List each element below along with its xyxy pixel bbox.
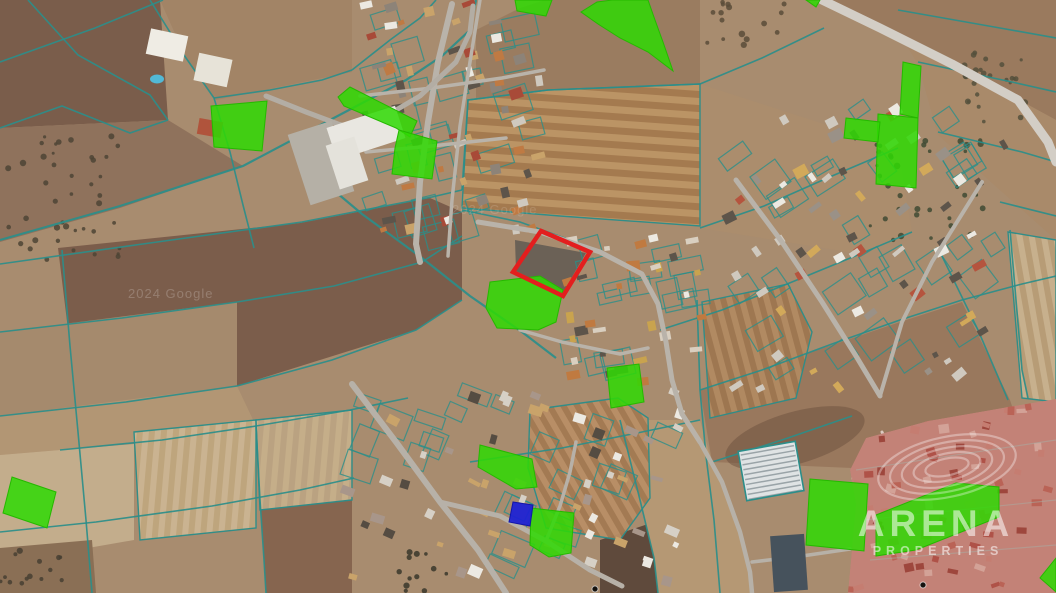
tree [27, 574, 33, 580]
tree [99, 175, 103, 179]
tree [20, 581, 25, 586]
tree [962, 193, 967, 198]
tree [971, 52, 977, 58]
tree [52, 163, 57, 168]
listing-map-image[interactable]: 2024 Google 2024 Google ARENA PROPERTIES [0, 0, 1056, 593]
tree [1018, 115, 1024, 121]
tree [1020, 58, 1023, 61]
tree [721, 2, 725, 6]
tree [1014, 76, 1019, 81]
tree [56, 555, 61, 560]
tree [914, 206, 920, 212]
tree [20, 160, 26, 166]
tree [13, 552, 17, 556]
blue-parcel [509, 502, 533, 526]
green-parcel [486, 276, 563, 330]
tree [54, 142, 57, 145]
tree [63, 223, 69, 229]
tree [40, 141, 44, 145]
tree [91, 229, 96, 234]
tree [43, 135, 46, 138]
tree [89, 182, 93, 186]
tree [32, 237, 38, 243]
tree [999, 62, 1004, 67]
tree [28, 246, 33, 251]
tree [403, 583, 409, 589]
tree [41, 154, 47, 160]
house [585, 319, 596, 327]
tree [8, 580, 13, 585]
tree [407, 549, 413, 555]
tree [445, 572, 449, 576]
brand-name: ARENA [858, 503, 1015, 544]
tree [898, 193, 903, 198]
tree [108, 133, 114, 139]
tree [721, 37, 725, 41]
striped-field [134, 420, 256, 540]
tree [43, 180, 48, 185]
tree [982, 120, 986, 124]
map-canvas: 2024 Google 2024 Google ARENA PROPERTIES [0, 0, 1056, 593]
green-parcel [211, 101, 267, 151]
green-parcel [900, 62, 921, 118]
tree [6, 225, 11, 230]
tree [705, 41, 709, 45]
house [604, 246, 610, 251]
terrain-patch [0, 0, 168, 128]
tree [17, 548, 23, 554]
tree [3, 575, 7, 579]
tree [407, 576, 411, 580]
house [490, 163, 502, 175]
tree [983, 57, 988, 62]
tree [52, 152, 55, 155]
tree [883, 216, 888, 221]
tree [761, 21, 767, 27]
tree [18, 241, 23, 246]
tree [116, 144, 121, 149]
tree [112, 221, 116, 225]
tree [947, 216, 951, 220]
tree [70, 174, 74, 178]
marker-dot [920, 582, 926, 588]
tree [56, 239, 60, 243]
tree [779, 10, 784, 15]
tree [775, 30, 780, 35]
tree [74, 229, 77, 232]
tree [397, 569, 402, 574]
tree [739, 31, 746, 38]
tree [407, 555, 412, 560]
tree [725, 2, 730, 7]
tree [37, 559, 42, 564]
tree [744, 36, 750, 42]
tree [980, 205, 986, 211]
tree [414, 574, 419, 579]
tree [53, 199, 58, 204]
tree [404, 589, 408, 593]
tree [964, 150, 968, 154]
imagery-watermark: 2024 Google [128, 286, 213, 301]
tree [68, 137, 74, 143]
tree [977, 105, 981, 109]
terrain-patch [0, 540, 96, 593]
tree [967, 100, 970, 103]
tree [117, 252, 120, 255]
green-parcel [844, 118, 880, 142]
building [770, 534, 808, 592]
tree [96, 200, 102, 206]
tree [23, 216, 29, 222]
tree [929, 236, 933, 240]
tree [60, 578, 64, 582]
brand-sub: PROPERTIES [873, 544, 1004, 558]
pool [150, 75, 164, 84]
tree [70, 192, 74, 196]
tree [91, 157, 96, 162]
house [566, 312, 575, 324]
tree [48, 568, 52, 572]
green-parcel [530, 508, 574, 557]
tree [104, 155, 108, 159]
tree [72, 248, 76, 252]
tree [82, 227, 86, 231]
tree [431, 566, 437, 572]
green-parcel [607, 364, 644, 408]
tree [711, 10, 716, 15]
house [616, 283, 622, 289]
tree [39, 577, 43, 581]
tree [914, 212, 919, 217]
green-parcel [876, 114, 918, 188]
tree [869, 224, 872, 227]
marker-dot [592, 586, 598, 592]
tree [5, 165, 11, 171]
tree [927, 208, 932, 213]
tree [414, 551, 420, 557]
tree [975, 92, 979, 96]
tree [720, 18, 725, 23]
tree [928, 149, 932, 153]
tree [718, 10, 723, 15]
house [501, 106, 509, 114]
tree [741, 42, 747, 48]
tree [93, 252, 97, 256]
tree [921, 142, 926, 147]
house [386, 48, 393, 56]
tree [97, 193, 102, 198]
imagery-watermark: 2024 Google [452, 202, 537, 217]
tree [424, 552, 428, 556]
tree [782, 2, 787, 7]
